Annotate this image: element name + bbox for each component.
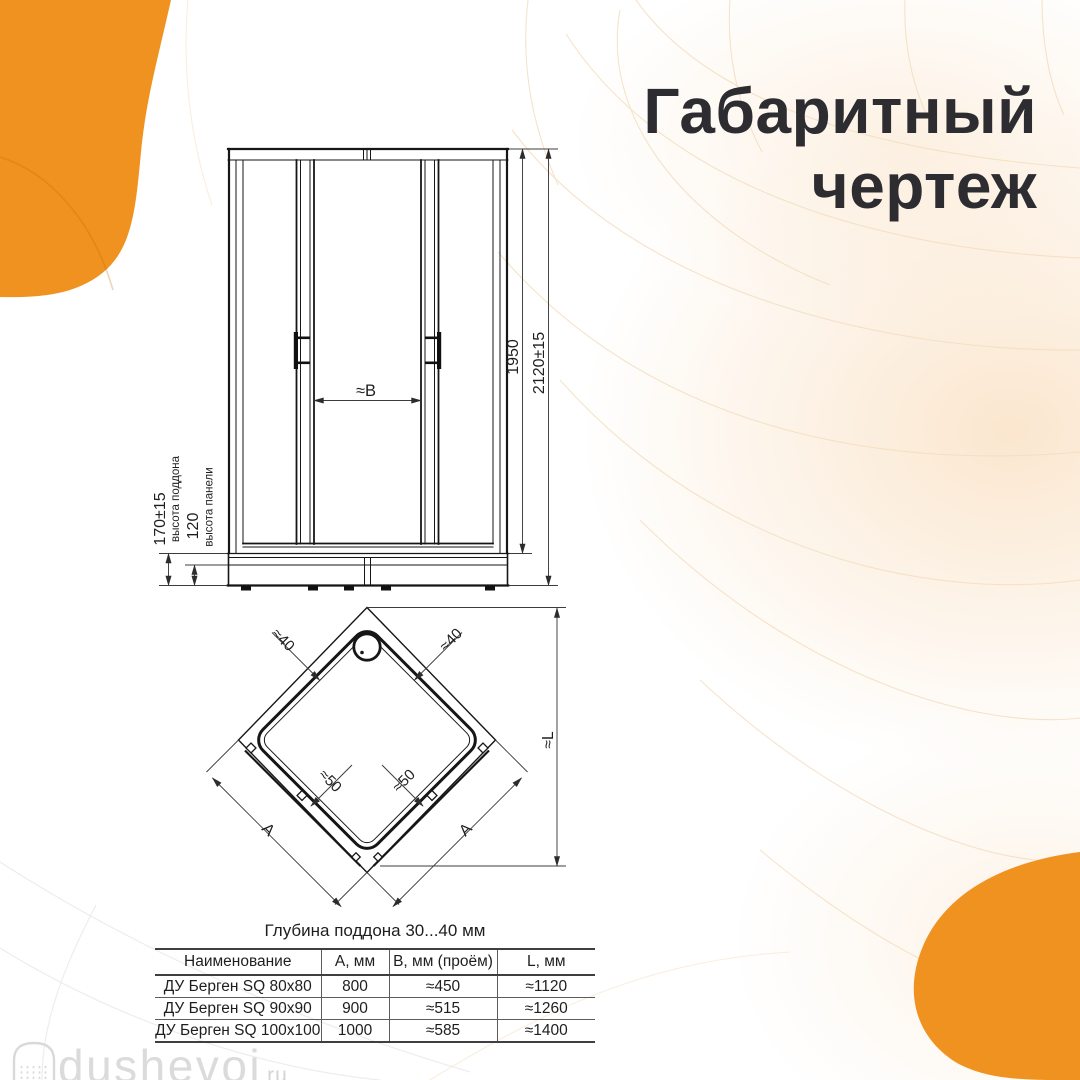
watermark-text: dushevoi (58, 1043, 262, 1080)
cell-name: ДУ Берген SQ 90x90 (155, 998, 321, 1020)
size-table-header-row: Наименование А, мм В, мм (проём) L, мм (155, 949, 595, 975)
table-row: ДУ Берген SQ 90x90 900 ≈515 ≈1260 (155, 998, 595, 1020)
top-view: ≈40 ≈40 ≈50 ≈50 A A ≈L (207, 608, 567, 907)
dim-a-left-label: A (258, 820, 278, 840)
cell-b: ≈450 (389, 975, 497, 998)
dim-opening-label: ≈B (356, 382, 376, 400)
page-title-line1: Габаритный (643, 74, 1037, 149)
dim-120-caption: высота панели (204, 467, 216, 546)
tray-depth-caption: Глубина поддона 30...40 мм (155, 921, 595, 941)
page-title: Габаритный чертеж (643, 74, 1037, 224)
dim-2120-label: 2120±15 (531, 332, 548, 394)
col-header-l: L, мм (497, 949, 595, 975)
cell-b: ≈515 (389, 998, 497, 1020)
drain-circle (354, 634, 380, 660)
door-handles (294, 332, 441, 369)
cell-l: ≈1120 (497, 975, 595, 998)
dim-40-left-label: ≈40 (268, 625, 298, 655)
page: ≈B 1950 2120±15 170±15 высота поддона 12… (0, 0, 1080, 1080)
cell-name: ДУ Берген SQ 100x100 (155, 1020, 321, 1043)
dim-a-right-label: A (456, 820, 476, 840)
dim-170-caption: высота поддона (170, 455, 182, 542)
col-header-a: А, мм (321, 949, 389, 975)
cell-l: ≈1260 (497, 998, 595, 1020)
size-table: Наименование А, мм В, мм (проём) L, мм Д… (155, 948, 595, 1043)
page-title-line2: чертеж (643, 149, 1037, 224)
cell-b: ≈585 (389, 1020, 497, 1043)
table-row: ДУ Берген SQ 80x80 800 ≈450 ≈1120 (155, 975, 595, 998)
tray-feet (241, 586, 495, 591)
cell-l: ≈1400 (497, 1020, 595, 1043)
col-header-name: Наименование (155, 949, 321, 975)
shower-icon (10, 1039, 58, 1080)
cell-a: 1000 (321, 1020, 389, 1043)
cell-a: 900 (321, 998, 389, 1020)
cell-a: 800 (321, 975, 389, 998)
cell-name: ДУ Берген SQ 80x80 (155, 975, 321, 998)
drain-dot (360, 651, 364, 655)
watermark: dushevoi ru (10, 1039, 288, 1080)
col-header-b: В, мм (проём) (389, 949, 497, 975)
watermark-suffix: ru (267, 1065, 288, 1080)
dim-40-right-label: ≈40 (436, 625, 466, 655)
dim-170-label: 170±15 (152, 492, 169, 545)
table-row: ДУ Берген SQ 100x100 1000 ≈585 ≈1400 (155, 1020, 595, 1043)
dim-l-label: ≈L (540, 731, 557, 749)
dim-1950-label: 1950 (505, 339, 522, 375)
dim-120-label: 120 (185, 513, 202, 540)
front-view: ≈B 1950 2120±15 170±15 высота поддона 12… (152, 149, 558, 591)
